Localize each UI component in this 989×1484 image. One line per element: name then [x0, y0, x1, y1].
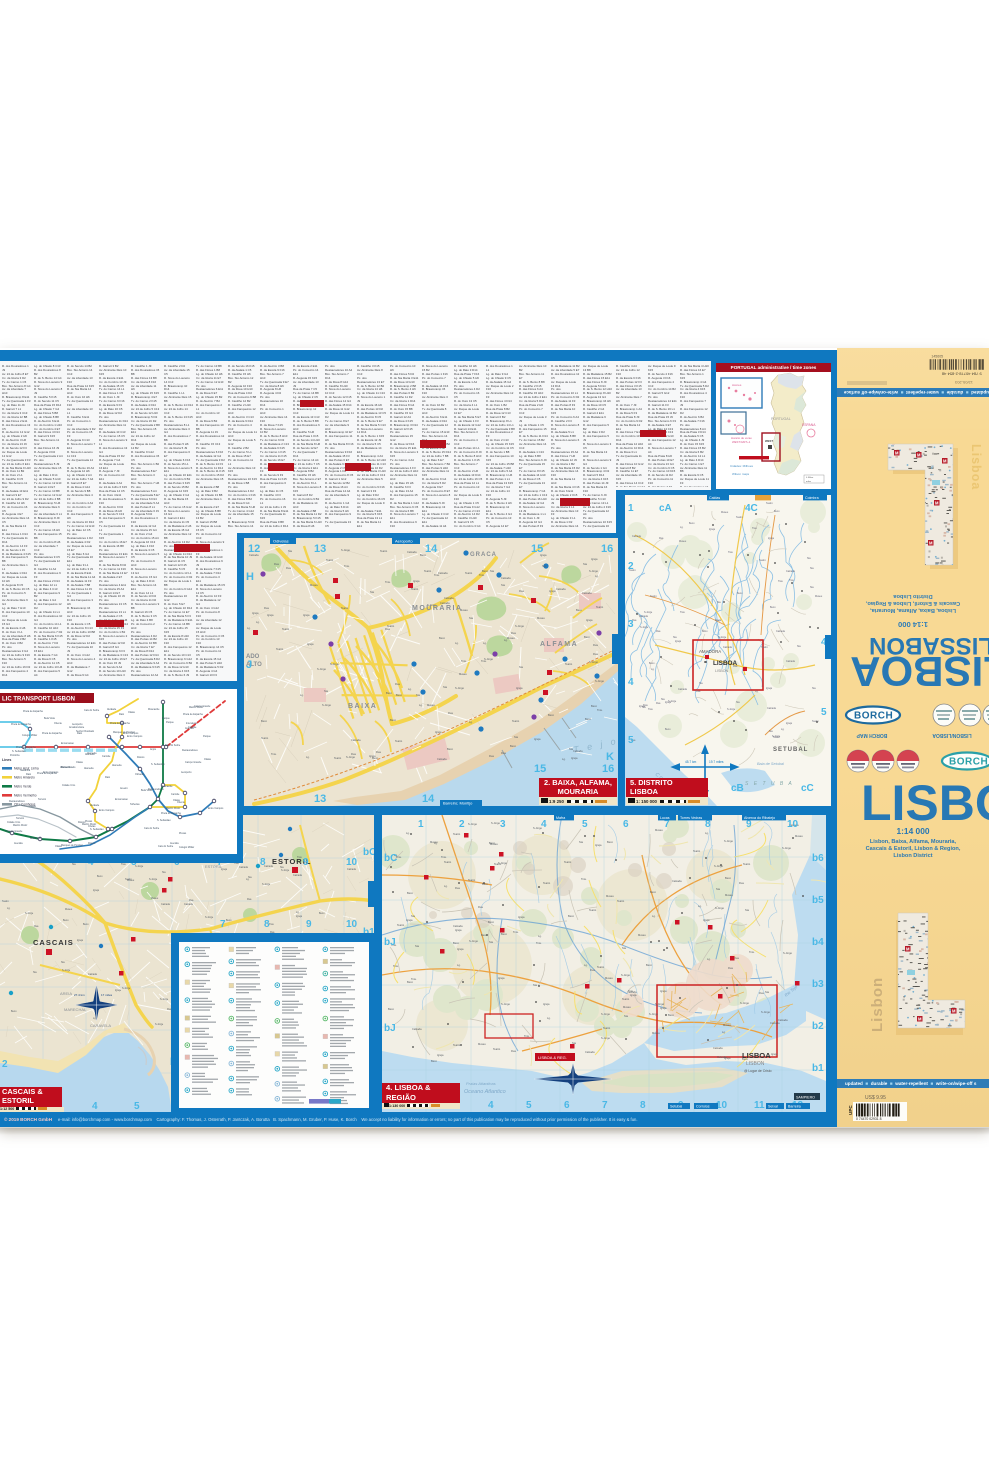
svg-text:Calcada: Calcada	[412, 1027, 422, 1031]
svg-text:Sta: Sta	[61, 961, 65, 964]
svg-text:Calcada: Calcada	[582, 591, 592, 595]
svg-text:Lg.: Lg.	[406, 831, 410, 835]
svg-text:Calcada: Calcada	[639, 615, 648, 618]
svg-text:S.Jorge: S.Jorge	[160, 998, 169, 1001]
svg-text:Calcada: Calcada	[347, 868, 356, 871]
svg-text:Martim Moniz: Martim Moniz	[189, 706, 204, 709]
svg-text:Rato: Rato	[119, 713, 125, 716]
svg-text:Aeroporto: Aeroporto	[395, 539, 413, 544]
svg-text:S.Jorge: S.Jorge	[740, 1001, 749, 1005]
svg-text:S. Sebastiao: S. Sebastiao	[12, 750, 26, 753]
svg-text:Lg.: Lg.	[722, 1030, 726, 1034]
svg-text:4: 4	[488, 1100, 494, 1111]
svg-text:Encarnacao: Encarnacao	[115, 798, 128, 801]
svg-text:Beco: Beco	[386, 691, 392, 695]
svg-text:S.Jorge: S.Jorge	[341, 548, 350, 552]
svg-text:Sta: Sta	[624, 1014, 628, 1018]
svg-text:Oceano Atlantico: Oceano Atlantico	[464, 1089, 506, 1095]
svg-text:4C: 4C	[745, 503, 758, 514]
svg-text:Sta: Sta	[514, 735, 518, 739]
svg-text:5: 5	[628, 735, 634, 746]
svg-text:Trav.: Trav.	[648, 708, 654, 711]
svg-text:S.Jorge: S.Jorge	[262, 883, 271, 886]
svg-text:K: K	[606, 751, 614, 763]
svg-text:Sta: Sta	[443, 685, 447, 689]
svg-text:Alverca do Ribatejo: Alverca do Ribatejo	[744, 816, 775, 820]
svg-text:Rua: Rua	[759, 991, 764, 995]
svg-text:Beco: Beco	[774, 510, 780, 513]
svg-text:Beco: Beco	[226, 919, 232, 922]
svg-text:Beco: Beco	[501, 932, 507, 936]
svg-text:Trav.: Trav.	[297, 856, 303, 859]
svg-text:Teatro: Teatro	[334, 756, 342, 760]
svg-text:LIC TRANSPORT LISBON: LIC TRANSPORT LISBON	[2, 697, 75, 703]
svg-text:Olaias: Olaias	[204, 758, 212, 761]
svg-text:Igreja: Igreja	[534, 737, 541, 741]
svg-text:Alvalade: Alvalade	[107, 708, 117, 711]
svg-text:Oriente: Oriente	[54, 722, 63, 725]
svg-text:4: 4	[541, 819, 547, 830]
svg-text:Intendente: Intendente	[186, 722, 198, 725]
svg-text:Rua: Rua	[733, 665, 738, 668]
svg-text:Calcada: Calcada	[723, 646, 732, 649]
svg-text:J: J	[246, 659, 252, 671]
svg-text:Teatro: Teatro	[773, 736, 780, 739]
svg-text:Rua: Rua	[478, 905, 483, 909]
svg-text:Alameda: Alameda	[112, 764, 122, 767]
svg-text:10: 10	[346, 857, 358, 868]
svg-text:S.Jorge: S.Jorge	[644, 611, 653, 614]
svg-text:Beco: Beco	[388, 1007, 394, 1011]
svg-text:6: 6	[564, 1100, 570, 1111]
svg-text:Museu: Museu	[478, 1042, 486, 1046]
svg-text:Lg.: Lg.	[584, 963, 588, 967]
svg-text:Metro Verde: Metro Verde	[14, 785, 32, 789]
svg-text:Lg.: Lg.	[457, 963, 461, 967]
svg-text:Cidade Univ.: Cidade Univ.	[62, 784, 76, 787]
svg-text:S.Jorge: S.Jorge	[455, 686, 464, 690]
svg-text:Rua: Rua	[519, 589, 524, 593]
svg-text:1: 1	[628, 503, 634, 514]
svg-text:Coimbra: Coimbra	[805, 496, 819, 500]
svg-text:Praias Atlanticas: Praias Atlanticas	[466, 1081, 496, 1086]
svg-text:M: M	[935, 500, 939, 505]
svg-text:Carnide: Carnide	[102, 755, 111, 758]
svg-text:Rua: Rua	[489, 754, 494, 758]
svg-text:Beco: Beco	[482, 882, 488, 886]
svg-text:Areeiro: Areeiro	[120, 787, 128, 790]
svg-text:Lg.: Lg.	[538, 934, 542, 938]
svg-text:Rua: Rua	[656, 630, 661, 633]
svg-text:Beco: Beco	[319, 912, 325, 915]
svg-text:Sta: Sta	[162, 871, 166, 874]
svg-text:10: 10	[346, 919, 358, 930]
svg-text:S.Jorge: S.Jorge	[498, 861, 507, 865]
svg-text:Museu: Museu	[310, 583, 318, 587]
svg-text:S.Jorge: S.Jorge	[640, 626, 649, 629]
svg-text:LISBON: LISBON	[746, 1061, 765, 1067]
svg-text:Restauradores: Restauradores	[9, 800, 25, 803]
svg-text:Igreja: Igreja	[221, 868, 228, 871]
svg-text:S. Sebastiao: S. Sebastiao	[157, 819, 171, 822]
svg-text:Metro Amarelo: Metro Amarelo	[14, 776, 35, 780]
svg-text:S.Jorge: S.Jorge	[515, 624, 524, 628]
svg-text:Sta: Sta	[288, 549, 292, 553]
svg-text:Teatro: Teatro	[597, 965, 605, 969]
svg-text:UPC: UPC	[849, 1105, 853, 1115]
svg-text:Calcada: Calcada	[786, 570, 795, 573]
svg-text:17 miles: 17 miles	[101, 993, 113, 997]
svg-text:7: 7	[602, 1100, 608, 1111]
svg-text:Rato: Rato	[105, 776, 111, 779]
svg-text:13: 13	[314, 543, 326, 555]
svg-text:Trav.: Trav.	[271, 752, 277, 756]
svg-text:Marques de Pombal: Marques de Pombal	[61, 844, 83, 847]
svg-text:Museu: Museu	[655, 828, 663, 832]
svg-text:Igreja: Igreja	[252, 611, 259, 615]
svg-text:Sta: Sta	[415, 944, 419, 948]
svg-text:Museu: Museu	[537, 616, 545, 620]
svg-text:Rua: Rua	[376, 750, 381, 754]
svg-text:Olaias: Olaias	[128, 711, 136, 714]
svg-text:M: M	[895, 450, 899, 455]
svg-text:S.Jorge: S.Jorge	[501, 1002, 510, 1006]
svg-text:Teatro: Teatro	[693, 849, 701, 853]
svg-text:Calcada: Calcada	[437, 757, 447, 761]
svg-text:Igreja: Igreja	[115, 989, 122, 992]
svg-text:Lg.: Lg.	[698, 904, 702, 908]
svg-text:Teatro: Teatro	[326, 558, 334, 562]
svg-text:Sta: Sta	[810, 586, 814, 589]
svg-text:Beco: Beco	[548, 713, 554, 717]
svg-text:Rua: Rua	[734, 956, 739, 960]
svg-text:PORTUGAL: PORTUGAL	[771, 417, 791, 421]
svg-text:2: 2	[628, 561, 634, 572]
svg-text:S.Jorge: S.Jorge	[205, 916, 214, 919]
svg-text:M: M	[943, 458, 947, 463]
svg-text:Avenida: Avenida	[14, 842, 23, 845]
svg-text:Rua: Rua	[247, 898, 252, 901]
svg-text:Lg.: Lg.	[93, 1017, 97, 1020]
svg-text:Baia de Setubal: Baia de Setubal	[757, 762, 784, 766]
svg-text:Beco: Beco	[725, 876, 731, 880]
svg-text:Rua: Rua	[511, 631, 516, 635]
svg-text:Igreja: Igreja	[660, 989, 667, 993]
svg-text:Rua: Rua	[395, 682, 400, 686]
svg-text:Igreja: Igreja	[595, 843, 602, 847]
svg-text:Calcada: Calcada	[351, 738, 361, 742]
svg-text:Teatro: Teatro	[743, 862, 751, 866]
svg-text:8: 8	[705, 819, 711, 830]
svg-text:S.Jorge: S.Jorge	[149, 878, 158, 881]
svg-text:Rua: Rua	[385, 627, 390, 631]
svg-text:Cidades: Milhoes: Cidades: Milhoes	[730, 464, 754, 468]
svg-text:Teatro: Teatro	[543, 881, 551, 885]
svg-text:Sta: Sta	[33, 971, 37, 974]
svg-text:Museu: Museu	[459, 672, 467, 676]
svg-text:Lg.: Lg.	[469, 720, 473, 724]
svg-text:Campo Grande: Campo Grande	[6, 830, 23, 833]
svg-text:Sta: Sta	[583, 562, 587, 566]
svg-text:Sta: Sta	[411, 914, 415, 918]
svg-text:Lg.: Lg.	[595, 574, 599, 578]
svg-text:10: 10	[787, 819, 799, 830]
svg-text:Sta: Sta	[569, 747, 573, 751]
svg-text:Aeroporto: Aeroporto	[72, 723, 83, 726]
svg-text:Lg.: Lg.	[444, 884, 448, 888]
svg-text:Beco: Beco	[702, 630, 708, 633]
svg-text:Trav.: Trav.	[789, 579, 795, 582]
svg-text:Lg.: Lg.	[300, 693, 304, 697]
svg-text:Sta: Sta	[717, 601, 721, 604]
svg-text:WEST/GMT+1: WEST/GMT+1	[732, 440, 751, 444]
svg-text:Martim Moniz: Martim Moniz	[166, 807, 181, 810]
svg-text:1: 1	[418, 819, 424, 830]
svg-text:ALFAMA: ALFAMA	[540, 641, 578, 648]
svg-text:Parque: Parque	[162, 717, 170, 720]
svg-text:Sta: Sta	[370, 590, 374, 594]
svg-text:Igreja: Igreja	[549, 589, 556, 593]
svg-text:Lg.: Lg.	[651, 668, 655, 671]
svg-text:Rua: Rua	[696, 690, 701, 693]
svg-text:Igreja: Igreja	[93, 889, 100, 892]
svg-text:Encarnacao: Encarnacao	[61, 742, 74, 745]
svg-text:Teatro: Teatro	[380, 549, 388, 553]
svg-text:Beco: Beco	[568, 914, 574, 918]
svg-text:Barreira: Barreira	[788, 1105, 801, 1109]
svg-text:Beco: Beco	[447, 747, 453, 751]
svg-text:Trav.: Trav.	[461, 659, 467, 663]
svg-text:Beco: Beco	[770, 606, 776, 609]
svg-text:Teatro: Teatro	[812, 720, 819, 723]
svg-text:Trav.: Trav.	[441, 855, 447, 859]
svg-text:Igreja: Igreja	[307, 642, 314, 646]
svg-text:b2: b2	[812, 1021, 824, 1032]
svg-text:S.Jorge: S.Jorge	[468, 822, 477, 826]
svg-text:Beco: Beco	[591, 704, 597, 708]
svg-text:S.Jorge: S.Jorge	[155, 1023, 164, 1026]
svg-text:Beco: Beco	[737, 592, 743, 595]
svg-text:Teatro: Teatro	[650, 595, 657, 598]
svg-text:S.Jorge: S.Jorge	[601, 1012, 610, 1016]
svg-text:Sta: Sta	[807, 557, 811, 560]
svg-text:Calcada: Calcada	[672, 879, 682, 883]
svg-text:Praca de Espanha: Praca de Espanha	[23, 710, 43, 713]
svg-text:Colegio Militar: Colegio Militar	[22, 734, 37, 737]
svg-text:27.4 km: 27.4 km	[74, 993, 85, 997]
svg-text:b4: b4	[812, 937, 824, 948]
svg-text:Teatro: Teatro	[493, 1047, 501, 1051]
svg-text:Rua: Rua	[728, 966, 733, 970]
svg-text:S.Jorge: S.Jorge	[62, 969, 71, 972]
svg-text:Bela Vista: Bela Vista	[30, 837, 41, 840]
svg-text:S.Jorge: S.Jorge	[281, 869, 290, 872]
svg-text:Wilson maps: Wilson maps	[732, 472, 750, 476]
svg-text:Teatro: Teatro	[596, 605, 604, 609]
svg-text:16: 16	[602, 763, 614, 775]
svg-text:Teatro: Teatro	[589, 908, 597, 912]
svg-text:M: M	[906, 946, 910, 951]
svg-text:Teatro: Teatro	[397, 923, 405, 927]
svg-text:MARECHAL: MARECHAL	[64, 1007, 87, 1012]
svg-text:11: 11	[754, 1100, 765, 1111]
svg-text:Sta: Sta	[765, 990, 769, 994]
svg-text:Sta: Sta	[416, 693, 420, 697]
svg-text:45.7 km: 45.7 km	[685, 760, 697, 764]
svg-text:4: 4	[92, 1101, 98, 1112]
svg-text:8: 8	[640, 1100, 646, 1111]
svg-text:Beco: Beco	[649, 662, 655, 665]
svg-text:5: 5	[526, 1100, 532, 1111]
svg-text:GRACA: GRACA	[470, 552, 497, 558]
svg-text:Rua: Rua	[656, 702, 661, 705]
svg-text:S. Sebastiao: S. Sebastiao	[151, 763, 165, 766]
svg-text:Sta: Sta	[810, 567, 814, 570]
svg-text:Teatro: Teatro	[424, 569, 432, 573]
svg-text:S.Jorge: S.Jorge	[621, 973, 630, 977]
svg-text:12: 12	[248, 543, 260, 555]
svg-text:8: 8	[260, 857, 266, 868]
svg-text:Lg.: Lg.	[434, 841, 438, 845]
svg-text:Entre Campos: Entre Campos	[123, 732, 139, 735]
svg-text:Beco: Beco	[63, 919, 69, 922]
svg-text:Museu: Museu	[721, 511, 729, 514]
svg-text:bC: bC	[384, 853, 397, 864]
svg-text:5: 5	[134, 1101, 140, 1112]
svg-text:Alameda: Alameda	[85, 753, 95, 756]
svg-text:Trav.: Trav.	[269, 923, 275, 926]
svg-text:Calcada: Calcada	[632, 535, 641, 538]
svg-text:Rato: Rato	[77, 732, 83, 735]
svg-text:Anjos: Anjos	[150, 748, 157, 751]
svg-text:Sta: Sta	[533, 983, 537, 987]
svg-text:Igreja: Igreja	[437, 1053, 444, 1057]
svg-text:Teatro: Teatro	[766, 502, 773, 505]
svg-text:Trav.: Trav.	[344, 564, 350, 568]
svg-text:H: H	[246, 571, 254, 583]
svg-text:4: 4	[628, 677, 634, 688]
svg-text:Praca de Espanha: Praca de Espanha	[42, 732, 62, 735]
svg-text:Calcada: Calcada	[717, 1055, 727, 1059]
svg-text:S.Jorge: S.Jorge	[718, 636, 727, 639]
svg-text:13: 13	[314, 793, 326, 805]
svg-text:Sta: Sta	[489, 940, 493, 944]
svg-text:S.Jorge: S.Jorge	[330, 662, 339, 666]
svg-text:Lg.: Lg.	[680, 526, 684, 529]
svg-text:AMADORA: AMADORA	[699, 649, 721, 654]
svg-text:Beco: Beco	[665, 728, 671, 731]
svg-text:Lg.: Lg.	[781, 728, 785, 731]
svg-text:@ Lugar de Cristo: @ Lugar de Cristo	[744, 1069, 772, 1073]
svg-text:Rua: Rua	[590, 968, 595, 972]
svg-text:Torres Vedras: Torres Vedras	[680, 816, 702, 820]
svg-text:Colegio Militar: Colegio Militar	[179, 846, 194, 849]
svg-text:Sta: Sta	[579, 840, 583, 844]
svg-text:Sta: Sta	[769, 730, 773, 733]
svg-text:Entre Campos: Entre Campos	[99, 809, 115, 812]
svg-text:Rua: Rua	[274, 562, 279, 566]
svg-text:Museu: Museu	[490, 842, 498, 846]
svg-text:Calcada: Calcada	[438, 571, 448, 575]
svg-text:Rua: Rua	[189, 899, 194, 902]
svg-text:Praca de Espanha: Praca de Espanha	[16, 746, 36, 749]
svg-text:Museu: Museu	[815, 595, 823, 598]
svg-text:Calcada: Calcada	[444, 596, 454, 600]
svg-text:Picoas: Picoas	[179, 832, 187, 835]
svg-text:Telheiras: Telheiras	[130, 803, 140, 806]
svg-text:bJ: bJ	[384, 1023, 396, 1034]
svg-text:Beco: Beco	[390, 718, 396, 722]
svg-text:Trav.: Trav.	[680, 611, 686, 614]
svg-text:Museu: Museu	[606, 894, 614, 898]
svg-text:Beco: Beco	[510, 744, 516, 748]
svg-text:Amadora Este: Amadora Este	[69, 726, 85, 729]
svg-text:Calcada: Calcada	[573, 749, 583, 753]
svg-text:S.Jorge: S.Jorge	[714, 864, 723, 868]
svg-text:Mafra: Mafra	[556, 816, 565, 820]
svg-text:145605: 145605	[931, 354, 943, 358]
svg-text:Terreiro: Terreiro	[38, 798, 47, 801]
svg-text:Igreja: Igreja	[267, 613, 274, 617]
svg-text:Lg.: Lg.	[296, 911, 300, 914]
svg-text:15: 15	[531, 543, 543, 555]
svg-text:Igreja: Igreja	[675, 640, 682, 643]
svg-text:Calcada: Calcada	[627, 990, 637, 994]
svg-text:M: M	[917, 452, 921, 457]
svg-text:Sta: Sta	[501, 583, 505, 587]
svg-text:Calcada: Calcada	[585, 1050, 595, 1054]
svg-text:Sta: Sta	[72, 863, 76, 866]
svg-text:Calcada: Calcada	[239, 866, 248, 869]
svg-text:Sta: Sta	[745, 908, 749, 912]
svg-text:Calcada: Calcada	[678, 688, 687, 691]
svg-text:Beco: Beco	[584, 635, 590, 639]
svg-text:Museu: Museu	[652, 1031, 660, 1035]
svg-text:0 50km: 0 50km	[806, 477, 813, 479]
svg-text:WEST: WEST	[765, 439, 773, 443]
svg-text:Teatro: Teatro	[125, 878, 132, 881]
svg-text:Calcada: Calcada	[770, 1021, 780, 1025]
svg-text:Carnide: Carnide	[171, 793, 180, 796]
svg-text:Igreja: Igreja	[639, 705, 646, 708]
svg-text:Teatro: Teatro	[282, 627, 290, 631]
svg-text:Beco: Beco	[668, 1013, 674, 1017]
svg-text:SETUBAL: SETUBAL	[773, 747, 808, 753]
svg-text:Trav.: Trav.	[581, 877, 587, 881]
svg-text:Lg.: Lg.	[7, 907, 11, 910]
svg-text:Igreja: Igreja	[543, 1002, 550, 1006]
svg-text:Corroios: Corroios	[696, 1105, 710, 1109]
svg-text:6: 6	[623, 819, 629, 830]
svg-text:Teatro: Teatro	[617, 899, 625, 903]
svg-text:Igreja: Igreja	[303, 613, 310, 617]
svg-text:Calcada: Calcada	[713, 1046, 723, 1050]
svg-text:Lg.: Lg.	[705, 831, 709, 835]
svg-text:Alameda: Alameda	[84, 767, 94, 770]
svg-text:S.Jorge: S.Jorge	[122, 987, 131, 990]
svg-text:Trav.: Trav.	[479, 573, 485, 577]
svg-text:Beco: Beco	[83, 923, 89, 926]
svg-text:Trav.: Trav.	[524, 1034, 530, 1038]
svg-text:Lg.: Lg.	[419, 703, 423, 707]
svg-text:S E T U B A: S E T U B A	[745, 781, 794, 787]
svg-text:Parque: Parque	[166, 721, 174, 724]
svg-text:Teatro: Teatro	[468, 878, 476, 882]
svg-text:Museu: Museu	[151, 897, 159, 900]
svg-text:2: 2	[459, 819, 465, 830]
svg-text:Teatro: Teatro	[565, 662, 573, 666]
svg-text:Olaias: Olaias	[29, 805, 37, 808]
